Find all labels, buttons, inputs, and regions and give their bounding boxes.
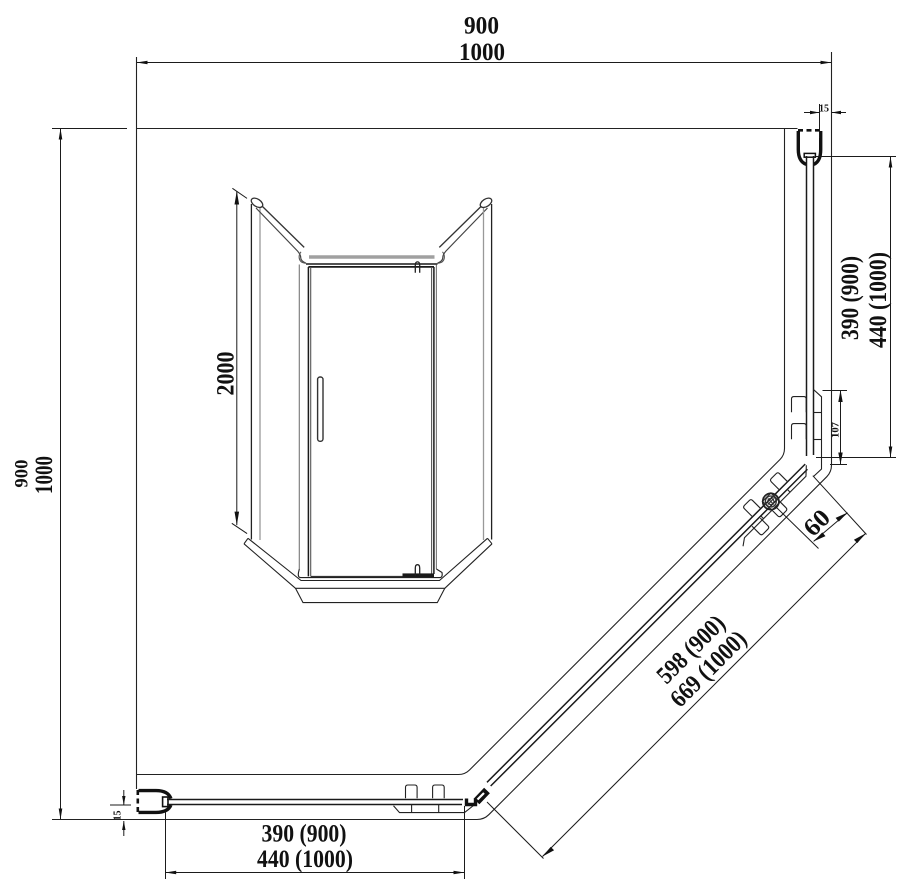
svg-text:1000: 1000 — [459, 39, 505, 66]
svg-text:15: 15 — [113, 811, 124, 821]
svg-text:390 (900): 390 (900) — [837, 256, 864, 340]
svg-text:1000: 1000 — [31, 456, 58, 494]
svg-text:440 (1000): 440 (1000) — [865, 252, 892, 348]
svg-text:15: 15 — [819, 104, 829, 115]
svg-text:440 (1000): 440 (1000) — [257, 846, 353, 873]
svg-text:900: 900 — [12, 460, 33, 488]
svg-text:390 (900): 390 (900) — [262, 821, 347, 848]
svg-text:900: 900 — [464, 13, 499, 40]
svg-text:107: 107 — [830, 422, 842, 438]
svg-text:2000: 2000 — [212, 352, 239, 396]
